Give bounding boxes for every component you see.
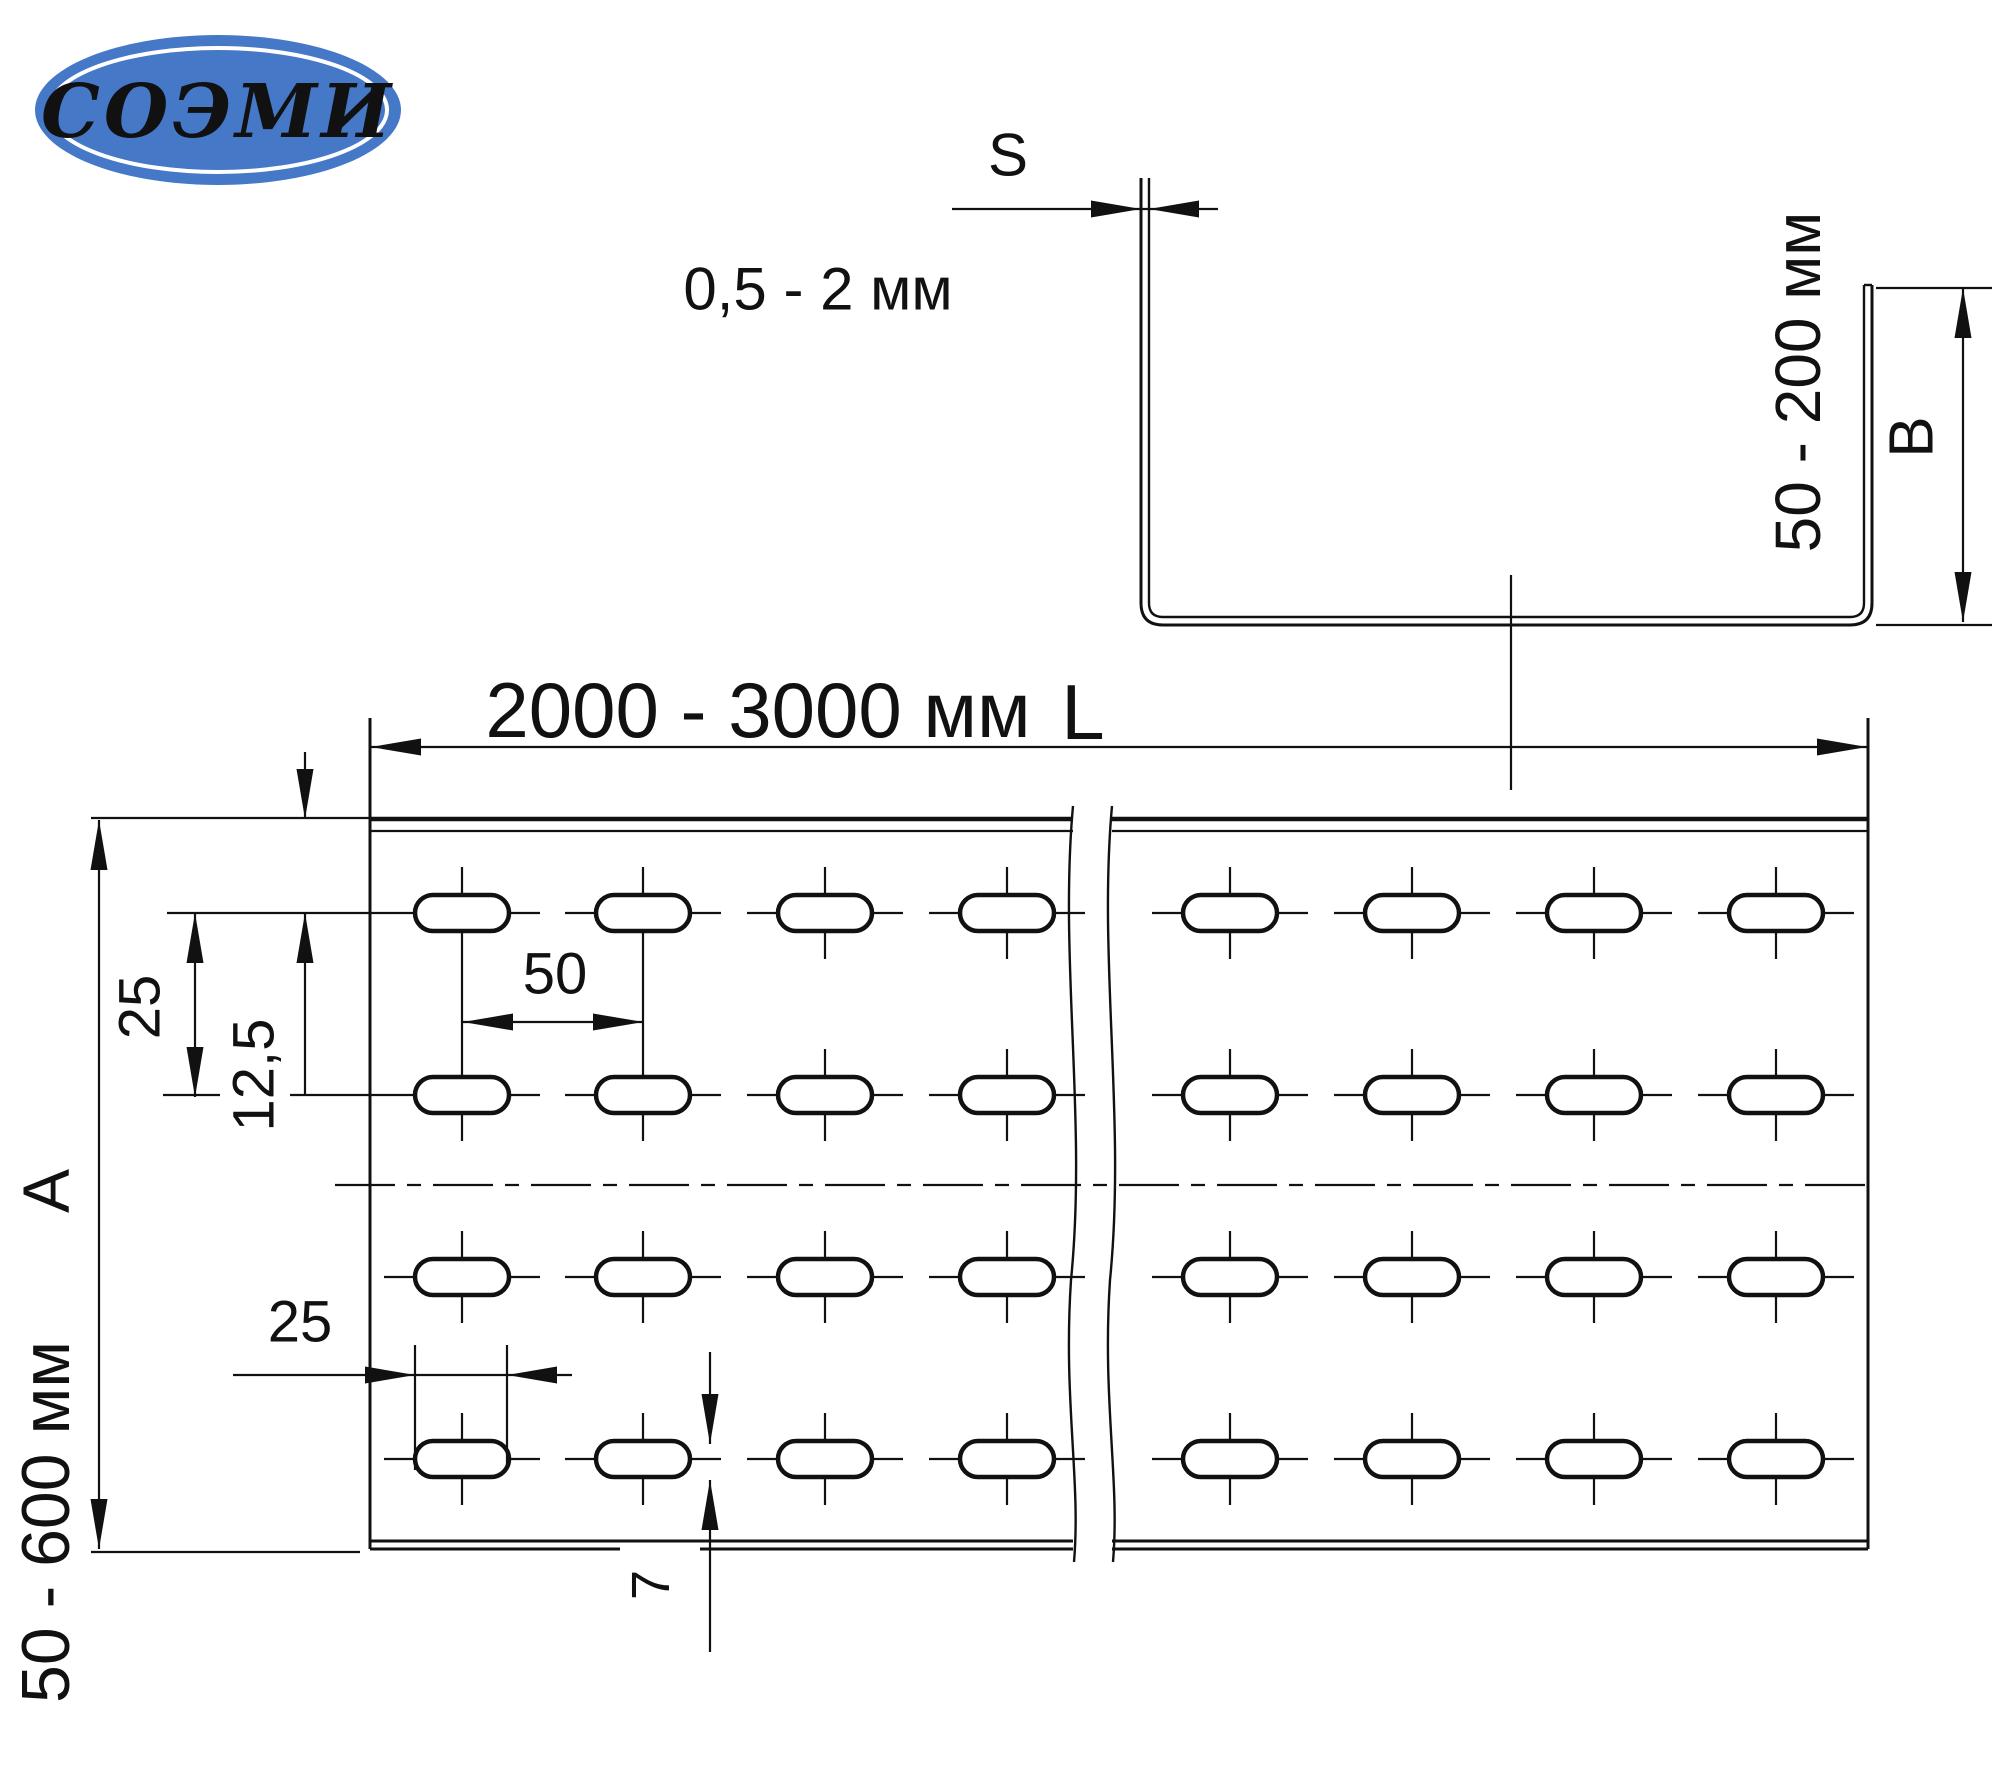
company-logo: СОЭМИ [35, 35, 401, 185]
width-arrow-top [91, 820, 108, 870]
hole-slot [1547, 1441, 1641, 1477]
thickness-value: 0,5 - 2 мм [683, 256, 952, 323]
thickness-dimension: S0,5 - 2 мм [683, 122, 1218, 323]
width-label: A [9, 1169, 83, 1213]
width-value: 50 - 600 мм [8, 1341, 84, 1703]
hole-slot [1547, 1077, 1641, 1113]
edge-offset-dimension: 12,5 [222, 752, 314, 1131]
cable-tray-technical-drawing: СОЭМИS0,5 - 2 мм50 - 200 ммB2000 - 3000 … [0, 0, 2000, 1771]
hole-pitch-value: 50 [523, 942, 588, 1007]
height-arrow-bottom [1955, 572, 1972, 622]
hole-slot [778, 1077, 872, 1113]
hole-slot [1729, 1259, 1823, 1295]
hole-slot [596, 1259, 690, 1295]
hole-slot [1183, 1077, 1277, 1113]
edge-offset-value: 12,5 [222, 1019, 287, 1132]
slot-width-dimension: 7 [621, 1352, 719, 1652]
slot-width-value: 7 [621, 1570, 681, 1600]
section-height-value: 50 - 200 мм [1762, 212, 1834, 553]
plan-view [335, 718, 1872, 1562]
logo-text: СОЭМИ [41, 69, 395, 155]
hole-slot [778, 1259, 872, 1295]
slot-width-arrow-bottom [702, 1480, 719, 1530]
hole-slot [1729, 1077, 1823, 1113]
section-height-dimension: 50 - 200 ммB [1762, 212, 1992, 625]
thickness-label: S [988, 122, 1028, 189]
hole-slot [778, 895, 872, 931]
hole-slot [415, 1077, 509, 1113]
length-arrow-right [1817, 739, 1867, 756]
hole-slot [415, 1441, 509, 1477]
hole-slot [1365, 1259, 1459, 1295]
section-outline-inner [1149, 178, 1864, 617]
hole-slot [596, 895, 690, 931]
slot-length-arrow-right [507, 1367, 557, 1384]
hole-slot [1547, 895, 1641, 931]
length-dimension: 2000 - 3000 ммL [371, 666, 1867, 756]
edge-offset-arrow-bottom [297, 913, 314, 963]
slot-length-value: 25 [268, 1290, 333, 1355]
thickness-arrow-right [1149, 201, 1199, 218]
hole-pitch-arrow-right [593, 1014, 643, 1031]
drawing-canvas: СОЭМИS0,5 - 2 мм50 - 200 ммB2000 - 3000 … [0, 0, 2000, 1771]
thickness-arrow-left [1091, 201, 1141, 218]
hole-slot [1183, 1259, 1277, 1295]
hole-slot [415, 895, 509, 931]
hole-slot [1729, 1441, 1823, 1477]
row-spacing-arrow-bottom [187, 1047, 204, 1097]
width-arrow-bottom [91, 1499, 108, 1549]
hole-slot [596, 1077, 690, 1113]
row-spacing-value: 25 [108, 975, 173, 1040]
hole-pitch-arrow-left [463, 1014, 513, 1031]
hole-slot [1365, 895, 1459, 931]
section-height-label: B [1878, 416, 1947, 457]
hole-slot [596, 1441, 690, 1477]
row-spacing-dimension: 25 [108, 913, 204, 1097]
hole-slot [960, 895, 1054, 931]
row-spacing-arrow-top [187, 913, 204, 963]
length-value: 2000 - 3000 мм [485, 666, 1030, 754]
hole-slot [1183, 1441, 1277, 1477]
length-arrow-left [371, 739, 421, 756]
hole-pitch-dimension: 50 [463, 942, 643, 1031]
height-arrow-top [1955, 288, 1972, 338]
hole-slot [1365, 1441, 1459, 1477]
slot-length-dimension: 25 [233, 1290, 572, 1471]
break-line [1108, 806, 1115, 1562]
hole-slot [960, 1077, 1054, 1113]
hole-slot [778, 1441, 872, 1477]
hole-slot [1365, 1077, 1459, 1113]
hole-slot [1729, 895, 1823, 931]
slot-width-arrow-top [702, 1394, 719, 1444]
slot-length-arrow-left [365, 1367, 415, 1384]
length-label: L [1061, 668, 1104, 756]
hole-slot [960, 1259, 1054, 1295]
hole-slot [1183, 895, 1277, 931]
hole-slot [415, 1259, 509, 1295]
hole-slot [960, 1441, 1054, 1477]
hole-slot [1547, 1259, 1641, 1295]
edge-offset-arrow-top [297, 769, 314, 819]
